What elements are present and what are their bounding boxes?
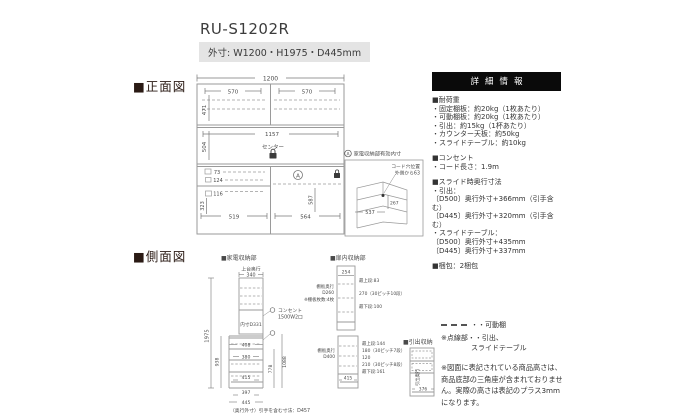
- dim-116: 116: [213, 192, 223, 198]
- door-lower-pitch1: 180（30ピッチ7段）: [362, 347, 405, 354]
- dim-mid-width: 1157: [265, 132, 279, 138]
- drawer-dim-376: 376: [419, 387, 428, 393]
- door-lower-shelf-depth-1: 棚板奥行: [317, 347, 335, 354]
- side-profile-lines: [229, 278, 263, 388]
- outlet-callout: コンセント 1500W2口: [263, 308, 303, 340]
- dim-587: 587: [309, 195, 315, 205]
- front-small-drawer-boxes: [205, 169, 212, 196]
- note-sketch: [357, 175, 407, 228]
- drawer-storage-label: ■引出収納: [403, 338, 433, 346]
- door-lower-shelf-depth-2: D400: [323, 354, 335, 360]
- dim-124: 124: [213, 178, 223, 184]
- dim-73: 73: [214, 170, 220, 176]
- side-dim-lines: [208, 272, 282, 402]
- slide-item: 〔D445〕奥行外寸+320mm（引手含む）: [432, 212, 561, 229]
- door-storage-label: ■扉内収納部: [330, 254, 366, 262]
- inner-depth-label: 内寸D331: [240, 321, 262, 328]
- legend-dotted-line1: ※点線部・・引出、: [441, 333, 565, 343]
- outlet-item: ・コード長さ：1.9m: [432, 163, 561, 172]
- appliance-storage-label: ■家電収納部: [221, 254, 257, 262]
- load-item: ・カウンター天板：約50kg: [432, 130, 561, 139]
- slide-item: 〔D500〕奥行外寸+435mm: [432, 238, 561, 247]
- slide-item: 〔D445〕奥行外寸+337mm: [432, 247, 561, 256]
- load-item: ・引出：約15kg（1杯あたり）: [432, 122, 561, 131]
- door-lower-mid: 120: [362, 355, 371, 361]
- side-view-diagram: ■家電収納部 上台奥行 340: [145, 252, 445, 416]
- drawer-depth-label: 引出奥行: [414, 368, 421, 386]
- dim-upper-left: 570: [228, 89, 239, 95]
- dim-total-width: 1200: [263, 75, 278, 82]
- top-depth-label: 上台奥行: [241, 266, 260, 273]
- load-capacity-title: ■耐荷重: [432, 96, 561, 105]
- door-lower-pitch2: 210（30ピッチ8段）: [362, 361, 405, 368]
- dim-380: 380: [242, 355, 251, 361]
- dim-1088: 1088: [282, 356, 288, 368]
- info-panel-body: ■耐荷重 ・固定棚板：約20kg（1枚あたり） ・可動棚板：約20kg（1枚あた…: [432, 96, 561, 271]
- dim-445: 445: [242, 400, 251, 406]
- outlet-label-line2: 1500W2口: [278, 315, 303, 321]
- dim-397: 397: [242, 390, 251, 396]
- outlet-label-line1: コンセント: [278, 308, 302, 314]
- front-view-diagram: 1200 570 570 471 1157 504 センター 73 124 11…: [193, 72, 348, 242]
- door-pitch: 270（30ピッチ10段）: [359, 290, 405, 297]
- height-note: ※図面に表記されている商品高さは、商品底部の三角座が含まれておりません。実際の高…: [441, 362, 565, 408]
- load-item: ・固定棚板：約20kg（1枚あたり）: [432, 105, 561, 114]
- packing-line: ■梱包：2梱包: [432, 262, 561, 271]
- slide-item: ・スライドテーブル：: [432, 229, 561, 238]
- legend-movable-shelf-label: ・・可動棚: [471, 320, 506, 330]
- info-panel: 詳細情報 ■耐荷重 ・固定棚板：約20kg（1枚あたり） ・可動棚板：約20kg…: [432, 72, 561, 271]
- dim-1975: 1975: [205, 329, 211, 342]
- legend: ・・可動棚 ※点線部・・引出、 スライドテーブル ※図面に表記されている商品高さ…: [441, 320, 565, 408]
- cord-hole-line2: 外側から63: [395, 170, 420, 177]
- legend-dotted-line2: スライドテーブル: [441, 343, 565, 353]
- info-panel-header: 詳細情報: [432, 72, 561, 91]
- slide-depth-title: ■スライド時奥行寸法: [432, 178, 561, 187]
- dim-upper-right: 570: [302, 89, 313, 95]
- dim-upper-height: 471: [202, 105, 208, 116]
- note-dim-267: 267: [390, 201, 399, 207]
- cord-hole-line1: コード穴位置: [391, 163, 420, 170]
- center-label: センター: [262, 143, 284, 151]
- front-view-section-label: ■正面図: [133, 76, 186, 95]
- dim-778: 778: [268, 365, 274, 374]
- dim-254: 254: [342, 270, 351, 276]
- front-cabinet-outline: [197, 84, 344, 234]
- door-bottom-shelf: 最下段:100: [359, 303, 382, 310]
- dim-519: 519: [229, 214, 240, 220]
- door-shelf-depth-1: 棚板奥行: [316, 283, 334, 290]
- a-mark-letter: A: [296, 173, 300, 179]
- door-top-shelf: 最上段:83: [359, 277, 379, 284]
- door-shelf-count: ※棚板枚数:4枚: [304, 296, 335, 303]
- dim-323: 323: [200, 201, 206, 211]
- dim-415: 415: [242, 375, 251, 381]
- outer-dimensions-badge: 外寸: W1200・H1975・D445mm: [199, 42, 370, 62]
- door-lower-top-shelf: 最上段:144: [362, 340, 385, 347]
- dim-408: 408: [242, 343, 251, 349]
- load-item: ・スライドテーブル：約10kg: [432, 139, 561, 148]
- dim-564: 564: [300, 214, 311, 220]
- note-a-mark-circle: A: [345, 150, 352, 157]
- door-lower-dim-415: 415: [344, 376, 353, 382]
- side-footnote: （奥行外寸）引手を含む寸法：D457: [230, 407, 310, 414]
- dashed-line-sample-icon: [441, 324, 467, 326]
- legend-movable-shelf-row: ・・可動棚: [441, 320, 565, 330]
- door-shelf-depth-2: D260: [322, 290, 334, 296]
- door-lower-bottom-shelf: 最下段:161: [362, 368, 385, 375]
- slide-item: 〔D500〕奥行外寸+366mm（引手含む）: [432, 195, 561, 212]
- appliance-note-box: A 家電収納部有効内寸 コード穴位置 外側から63 267 537: [343, 148, 425, 238]
- cord-hole-dot: [382, 194, 385, 197]
- product-spec-page: RU-S1202R 外寸: W1200・H1975・D445mm ■正面図 ■側…: [0, 0, 680, 420]
- dim-938: 938: [215, 358, 221, 367]
- side-dashed-lines: [231, 288, 262, 376]
- door-storage-lower-shelves: [339, 346, 357, 366]
- product-code-title: RU-S1202R: [200, 20, 289, 38]
- door-storage-shelves: [338, 284, 354, 312]
- note-title: 家電収納部有効内寸: [354, 150, 402, 158]
- load-item: ・可動棚板：約20kg（1枚あたり）: [432, 113, 561, 122]
- base-lock-icon: [334, 170, 340, 178]
- dim-mid-height: 504: [202, 141, 208, 152]
- outlet-title: ■コンセント: [432, 154, 561, 163]
- note-dim-537: 537: [365, 210, 375, 216]
- a-mark-circle: A: [294, 171, 303, 180]
